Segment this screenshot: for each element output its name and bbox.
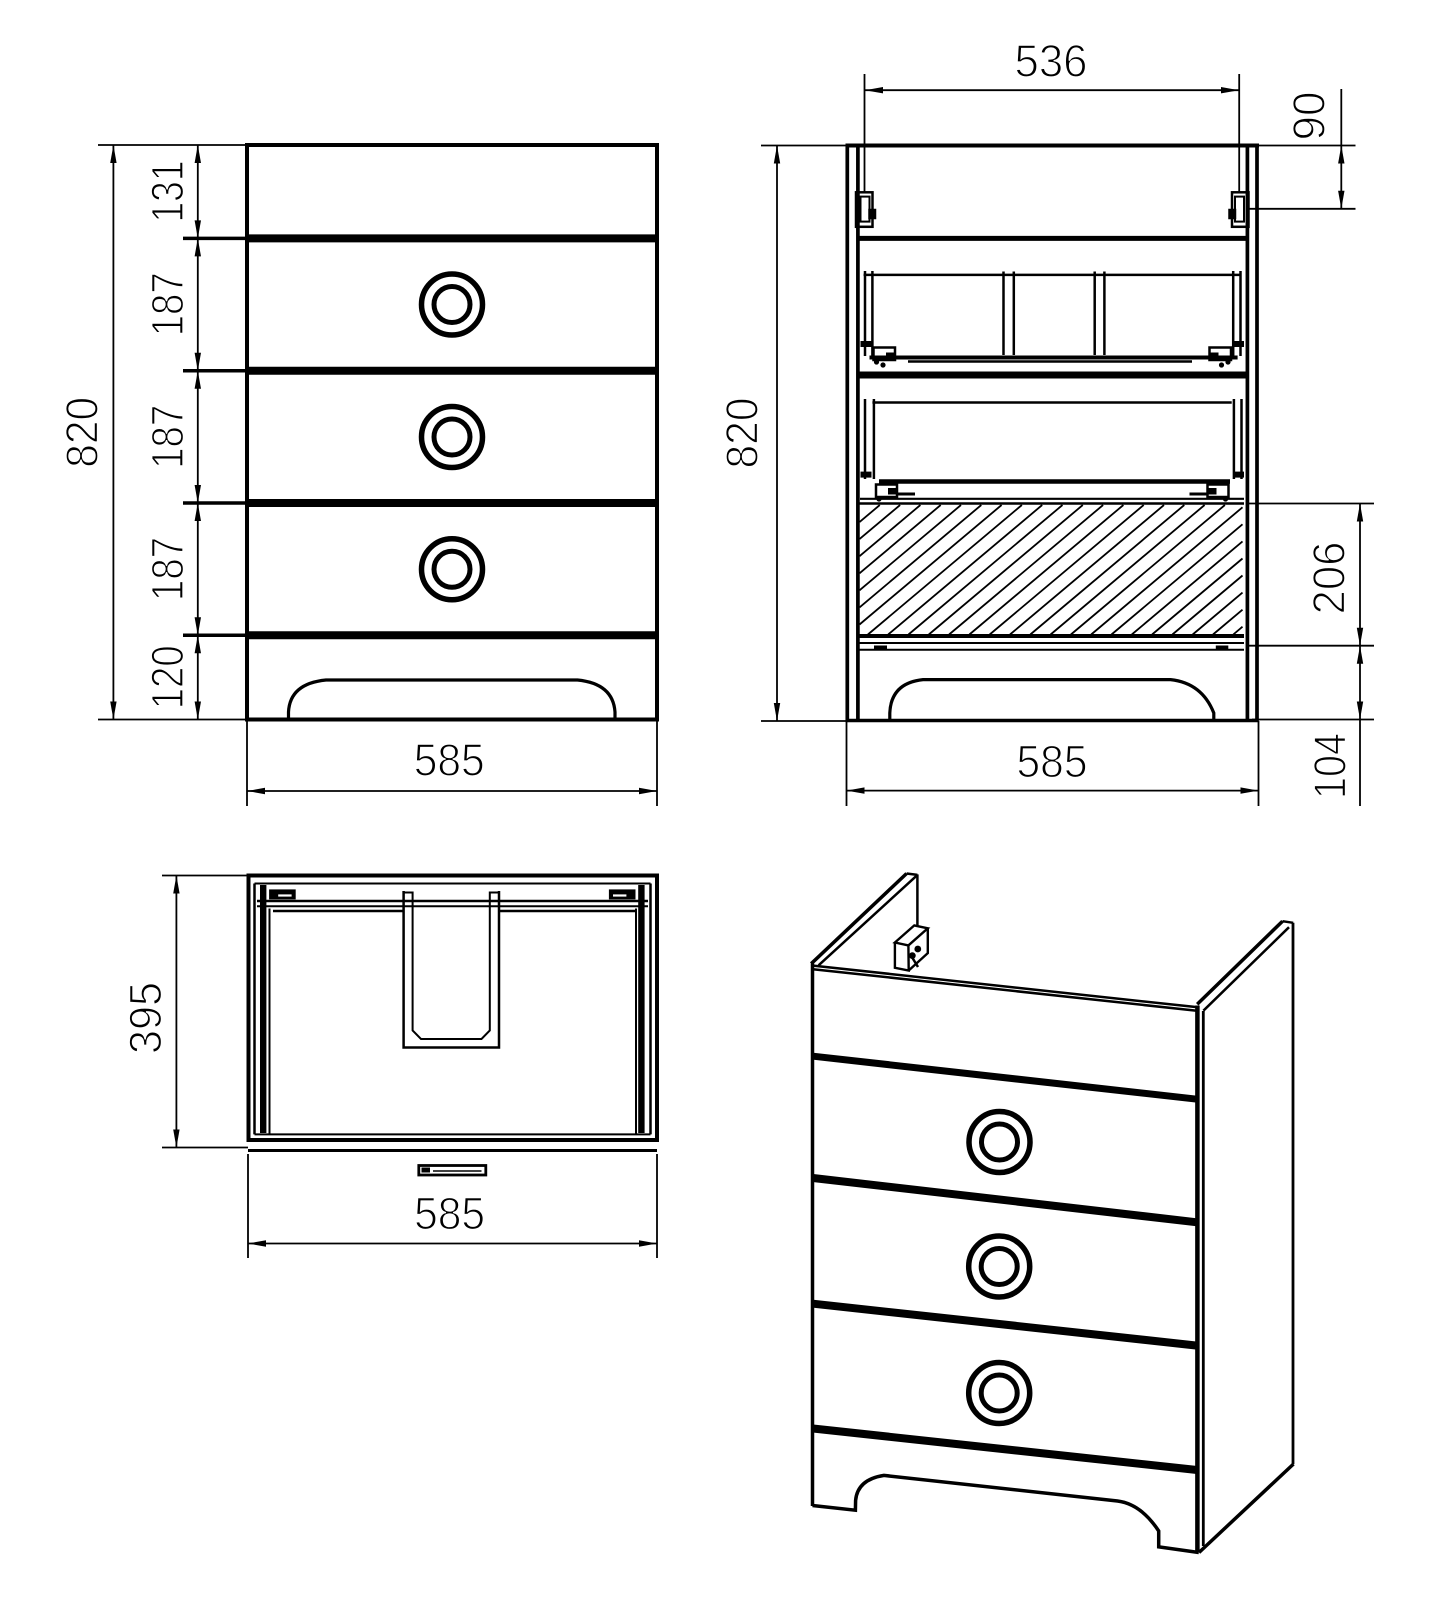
svg-text:585: 585 <box>414 735 485 786</box>
svg-text:131: 131 <box>142 161 193 223</box>
svg-text:187: 187 <box>142 537 193 601</box>
svg-text:187: 187 <box>142 405 193 469</box>
svg-text:820: 820 <box>716 398 767 469</box>
svg-text:90: 90 <box>1284 92 1335 141</box>
svg-text:820: 820 <box>57 397 108 468</box>
svg-text:585: 585 <box>414 1188 485 1239</box>
svg-text:120: 120 <box>142 645 193 709</box>
svg-text:395: 395 <box>120 982 171 1054</box>
svg-text:585: 585 <box>1017 736 1088 787</box>
svg-text:104: 104 <box>1304 733 1355 799</box>
svg-text:536: 536 <box>1015 35 1088 86</box>
svg-text:187: 187 <box>142 272 193 336</box>
svg-text:206: 206 <box>1303 542 1354 615</box>
